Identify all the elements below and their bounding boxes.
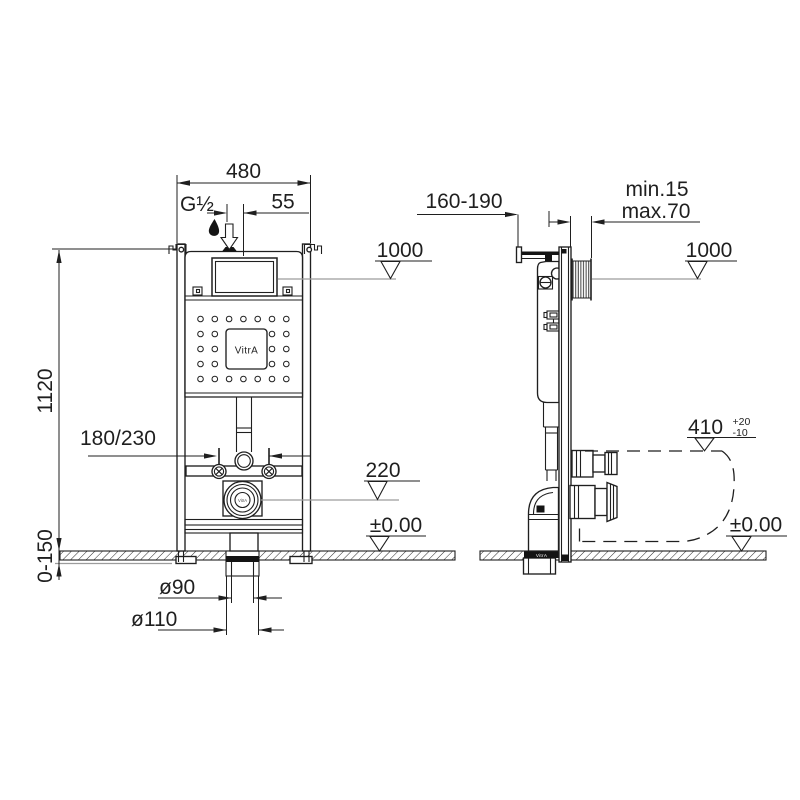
drain-dia-label: ø90: [159, 576, 195, 599]
height-dimension: 1120 0-150: [34, 249, 176, 583]
drain-flange-label: VitrA: [238, 498, 247, 503]
finish-min-label: min.15: [625, 178, 688, 201]
side-view: VitrA: [417, 178, 787, 574]
side-floor-level-label: ±0.00: [730, 514, 782, 537]
installation-drawing-page: VitrA: [0, 0, 800, 800]
collar-label: VitrA: [536, 553, 548, 558]
drain-level-marker: 220: [261, 459, 420, 500]
inlet-callout: G½: [180, 193, 238, 250]
side-frame-rail: [559, 247, 571, 562]
flow-down-arrow-icon: [221, 224, 238, 250]
height-dim-label: 1120: [34, 368, 57, 413]
side-floor-drain-pipe: VitrA: [524, 552, 564, 575]
flush-bend-pipe: [237, 397, 252, 452]
bowl-height-dimension: 410 +20 -10: [687, 416, 756, 451]
fixing-screw-right: [262, 465, 276, 479]
depth-range-dimension: 160-190: [417, 190, 518, 247]
flush-pipe-connector: [572, 451, 617, 478]
floor-buildup-label: 0-150: [34, 529, 57, 583]
fixing-spacing-dimension: 180/230: [80, 427, 311, 459]
side-tank-lower: [544, 403, 560, 482]
side-floor-level-marker: ±0.00: [726, 514, 787, 552]
side-flush-level-label: 1000: [686, 239, 733, 262]
flush-plate-window: [212, 258, 277, 296]
bowl-height-label: 410: [688, 416, 723, 439]
fixing-spacing-label: 180/230: [80, 427, 156, 450]
front-flush-level-label: 1000: [377, 239, 424, 262]
water-drop-icon: [209, 219, 219, 236]
side-flush-level-marker: 1000: [592, 239, 737, 279]
drain-pipe-connector: [570, 483, 617, 522]
sleeve-dia-label: ø110: [131, 608, 177, 631]
inlet-offset-label: 55: [271, 191, 294, 214]
front-floor-drain-pipe: [226, 551, 259, 576]
lower-crossbars: [185, 520, 303, 552]
wall-bracket-arm: [517, 247, 560, 263]
drain-level-label: 220: [365, 459, 400, 482]
inlet-offset-dimension: 55: [244, 191, 310, 257]
installation-drawing: VitrA: [0, 0, 800, 800]
drain-outlet: VitrA: [223, 481, 262, 519]
drain-diameter-dimensions: ø90 ø110: [131, 576, 284, 635]
wall-finish-dimension: min.15 max.70: [549, 178, 700, 258]
drain-elbow: [529, 488, 559, 552]
wall-sleeve: [572, 259, 591, 301]
width-dim-label: 480: [226, 160, 261, 183]
finish-max-label: max.70: [622, 200, 691, 223]
front-view: VitrA: [34, 160, 455, 635]
vitra-logo: VitrA: [235, 346, 259, 357]
brand-plate: VitrA: [226, 329, 267, 369]
front-floor-level-label: ±0.00: [370, 514, 422, 537]
front-floor-level-marker: ±0.00: [366, 514, 426, 551]
fixing-screw-left: [212, 465, 226, 479]
depth-range-label: 160-190: [425, 190, 502, 213]
